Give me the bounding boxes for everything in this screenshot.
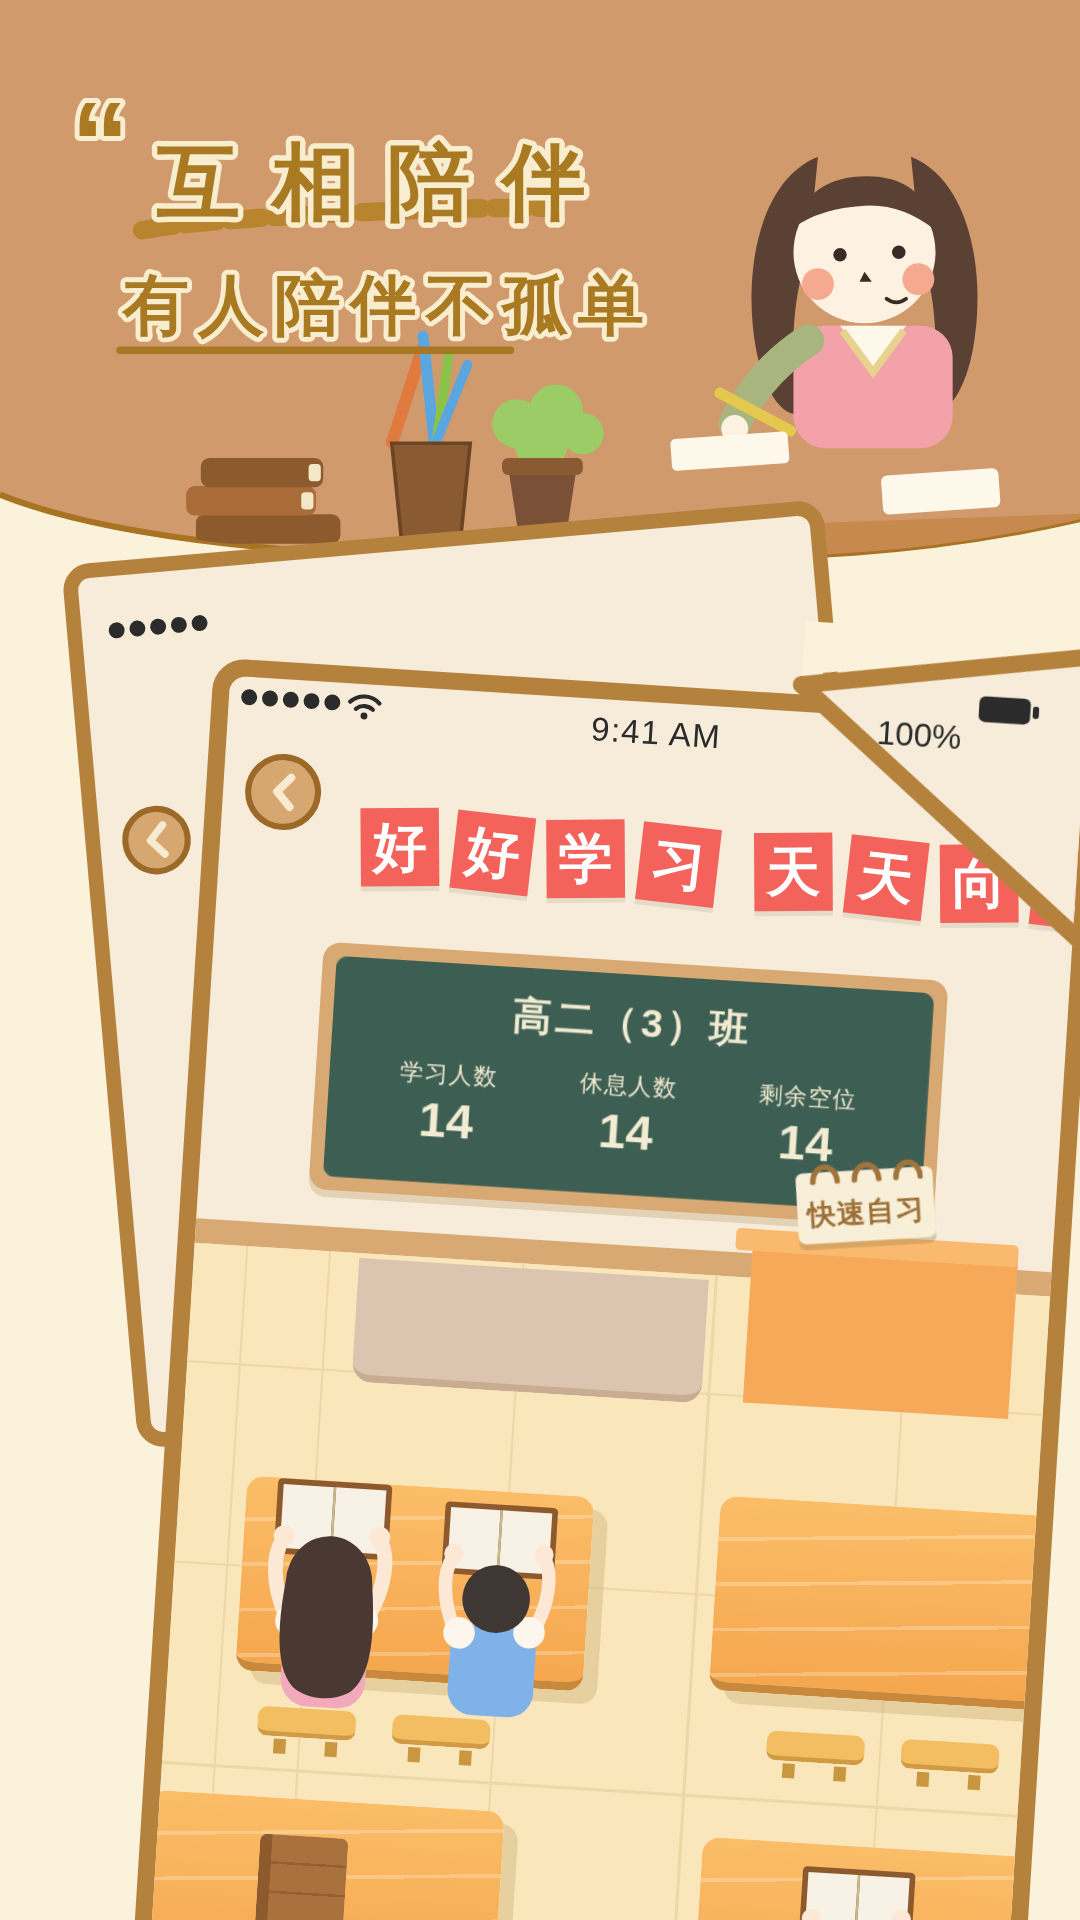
- quick-study-button[interactable]: 快速自习: [795, 1166, 936, 1245]
- teacher-podium: [743, 1244, 1018, 1420]
- chair[interactable]: [390, 1714, 491, 1771]
- stat-label: 学习人数: [399, 1056, 499, 1094]
- stat-label: 剩余空位: [758, 1078, 858, 1116]
- blush: [902, 263, 934, 295]
- stat-resting: 休息人数 14: [575, 1067, 678, 1162]
- battery-percent: 100%: [876, 713, 963, 755]
- chevron-left-icon: [141, 819, 171, 860]
- desk-row1-right[interactable]: [709, 1496, 1068, 1712]
- desk-row1-left[interactable]: [235, 1476, 594, 1692]
- chair[interactable]: [899, 1739, 1000, 1796]
- signal-dots-icon: [108, 614, 208, 639]
- back-button-background-phone[interactable]: [119, 803, 193, 877]
- subtitle-underline: [116, 347, 514, 354]
- slogan-tile: 学: [546, 819, 625, 898]
- quick-study-label: 快速自习: [806, 1190, 926, 1235]
- header-title: 互相陪伴: [157, 136, 617, 229]
- binder-rings-icon: [804, 1149, 923, 1185]
- eye: [833, 248, 846, 261]
- closed-book: [252, 1833, 349, 1920]
- student-girl: [235, 1468, 422, 1729]
- quote-mark: “: [71, 79, 129, 209]
- slogan-tile: 好: [360, 808, 439, 887]
- stat-label: 休息人数: [579, 1067, 679, 1105]
- chevron-left-icon: [267, 770, 299, 813]
- stat-value: 14: [395, 1090, 496, 1151]
- page-fold-corner: 100%: [674, 615, 1080, 1055]
- chair[interactable]: [256, 1706, 357, 1763]
- back-button[interactable]: [243, 752, 324, 833]
- chair[interactable]: [764, 1730, 865, 1787]
- header-subtitle: 有人陪伴不孤单: [121, 268, 653, 342]
- stage: “ 互相陪伴 有人陪伴不孤单 9:41 AM: [0, 0, 1080, 1920]
- eye: [892, 246, 905, 259]
- main-phone: 9:41 AM 好 好 学 习 天 天 向 上 高二（3）: [128, 658, 1080, 1920]
- student-boy: [403, 1486, 587, 1739]
- desk-row2-left[interactable]: [146, 1790, 505, 1920]
- stat-value: 14: [575, 1101, 676, 1162]
- blush: [802, 268, 834, 300]
- teacher-platform: [352, 1258, 709, 1403]
- stat-studying: 学习人数 14: [395, 1056, 498, 1151]
- student-boy: [761, 1851, 945, 1920]
- header-banner: “ 互相陪伴 有人陪伴不孤单: [0, 0, 1080, 576]
- slogan-tile: 好: [449, 810, 536, 897]
- notebook: [881, 468, 1001, 515]
